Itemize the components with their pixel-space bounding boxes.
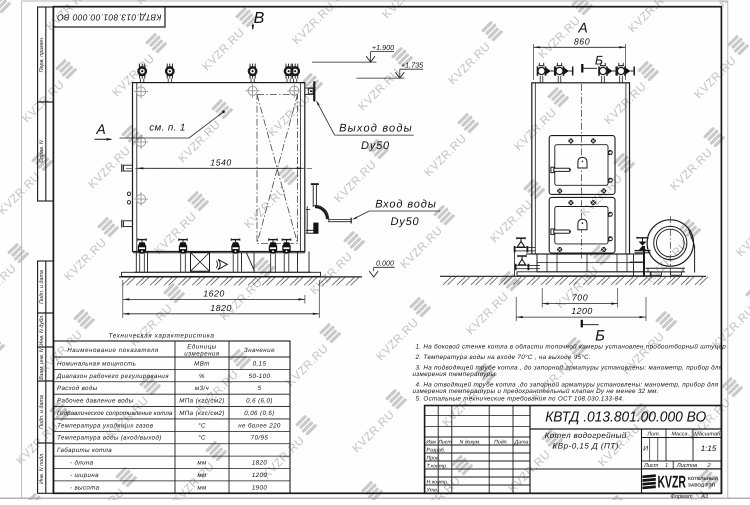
svg-text:Температура воды (вход/выход): Температура воды (вход/выход) [57,435,162,442]
svg-text:1200: 1200 [571,306,593,316]
svg-text:Номинальная мощность: Номинальная мощность [57,360,136,367]
svg-text:КВТД .013.801.00.000 ВО: КВТД .013.801.00.000 ВО [545,410,706,426]
svg-text:КВр-0,15 Д (ПТ): КВр-0,15 Д (ПТ) [553,441,619,450]
svg-text:5. Остальные технические треб: 5. Остальные технические требования по О… [416,396,625,403]
svg-text:ЗАВОД РЭП: ЗАВОД РЭП [688,482,715,487]
svg-text:измерения: измерения [184,350,220,357]
svg-text:Подп.: Подп. [494,439,508,445]
svg-text:Подп. и дата: Подп. и дата [39,395,45,429]
svg-text:мм: мм [197,472,207,479]
svg-text:Масса: Масса [672,431,688,437]
svg-text:мм: мм [197,460,207,467]
svg-text:Значение: Значение [244,347,275,354]
svg-text:Листов: Листов [676,463,697,469]
svg-text:Дата: Дата [514,439,529,445]
svg-text:измерения температуры.: измерения температуры. [413,371,498,378]
svg-text:Вход воды: Вход воды [375,199,437,211]
svg-text:Техническая характеристика: Техническая характеристика [108,333,214,340]
svg-text:Инв. N дубл.: Инв. N дубл. [39,314,45,345]
svg-text:°С: °С [198,422,206,429]
svg-text:КВТД.013.801.00.000 ВО: КВТД.013.801.00.000 ВО [57,13,162,23]
svg-text:2. Температура воды на входе: 2. Температура воды на входе 70°С , на в… [415,354,592,361]
svg-text:0,06 (0,6): 0,06 (0,6) [244,410,274,417]
svg-text:А: А [95,121,105,137]
svg-text:1820: 1820 [252,460,268,467]
svg-text:Наименование показателя: Наименование показателя [67,347,159,354]
svg-text:1620: 1620 [203,288,225,298]
svg-text:Габариты котла: Габариты котла [57,447,112,454]
svg-text:50-100: 50-100 [249,373,271,380]
svg-text:- высота: - высота [70,484,100,491]
svg-text:5: 5 [258,385,262,392]
svg-text:1200: 1200 [252,472,268,479]
svg-text:Справ. N: Справ. N [39,140,45,163]
svg-text:см. п. 1: см. п. 1 [149,123,186,134]
svg-text:МПа (кгс/см2): МПа (кгс/см2) [179,410,225,417]
svg-text:Диапазон рабочего регулировани: Диапазон рабочего регулирования [56,373,169,380]
svg-text:Dy50: Dy50 [391,216,420,228]
svg-text:Выход воды: Выход воды [339,123,413,135]
svg-text:Н.контр.: Н.контр. [427,479,449,485]
svg-text:Формат: Формат [670,494,693,500]
svg-text:Инв. N подл.: Инв. N подл. [39,452,45,484]
svg-text:измерения температуры и предох: измерения температуры и предохранительны… [413,388,659,395]
svg-text:Т.контр.: Т.контр. [427,463,448,469]
svg-text:%: % [199,373,205,380]
svg-text:Котел водогрейный: Котел водогрейный [545,431,627,440]
svg-text:0,6 (6,0): 0,6 (6,0) [246,398,273,405]
svg-text:Масштаб: Масштаб [694,431,721,437]
svg-text:860: 860 [574,36,590,46]
svg-text:Утв.: Утв. [427,487,439,493]
svg-text:Взам. инв. N: Взам. инв. N [39,348,45,380]
svg-text:Расход воды: Расход воды [57,385,98,392]
svg-text:Гидравлическое сопротивление к: Гидравлическое сопротивление котла [57,410,173,417]
svg-text:не более 220: не более 220 [238,422,281,429]
svg-text:Рабочее давление воды: Рабочее давление воды [57,398,134,405]
svg-text:Единицы: Единицы [187,343,216,350]
svg-text:KVZR: KVZR [658,472,687,491]
svg-text:Температура уходящих газов: Температура уходящих газов [57,422,154,429]
svg-text:А: А [577,20,587,36]
svg-text:1900: 1900 [252,484,268,491]
svg-text:Подп. и дата: Подп. и дата [39,270,45,304]
svg-text:Пров.: Пров. [427,455,441,461]
svg-text:+1.900: +1.900 [372,43,394,52]
svg-text:0.000: 0.000 [376,259,394,268]
svg-text:70/95: 70/95 [251,435,269,442]
svg-text:Разраб.: Разраб. [427,447,446,453]
svg-text:700: 700 [572,293,588,303]
svg-text:1. На боковой стенке котла в: 1. На боковой стенке котла в области топ… [416,344,727,351]
svg-text:1: 1 [665,463,668,469]
svg-text:- длина: - длина [70,460,94,467]
svg-text:КОТЕЛЬНЫЙ: КОТЕЛЬНЫЙ [688,475,718,481]
svg-text:Изм: Изм [426,439,436,445]
svg-text:Перв. примен.: Перв. примен. [39,37,45,73]
svg-text:1:15: 1:15 [701,444,717,453]
svg-text:Лист: Лист [437,439,452,445]
svg-text:Лит.: Лит. [646,431,660,437]
svg-text:Dy50: Dy50 [361,140,390,152]
svg-text:м3/ч: м3/ч [195,385,210,392]
svg-text:Б: Б [595,328,605,345]
svg-text:МВт: МВт [194,360,210,367]
svg-text:1820: 1820 [210,303,232,313]
svg-text:0,15: 0,15 [253,360,267,367]
svg-text:В: В [254,10,265,27]
svg-text:А3: А3 [700,494,709,500]
svg-text:МПа (кгс/см2): МПа (кгс/см2) [179,398,225,405]
svg-text:°С: °С [198,435,206,442]
svg-text:- ширина: - ширина [70,472,99,479]
svg-text:1540: 1540 [210,157,232,167]
svg-text:N докум.: N докум. [460,439,481,445]
svg-text:+1.735: +1.735 [401,61,424,70]
svg-text:мм: мм [197,484,207,491]
svg-text:Лист: Лист [643,463,659,469]
